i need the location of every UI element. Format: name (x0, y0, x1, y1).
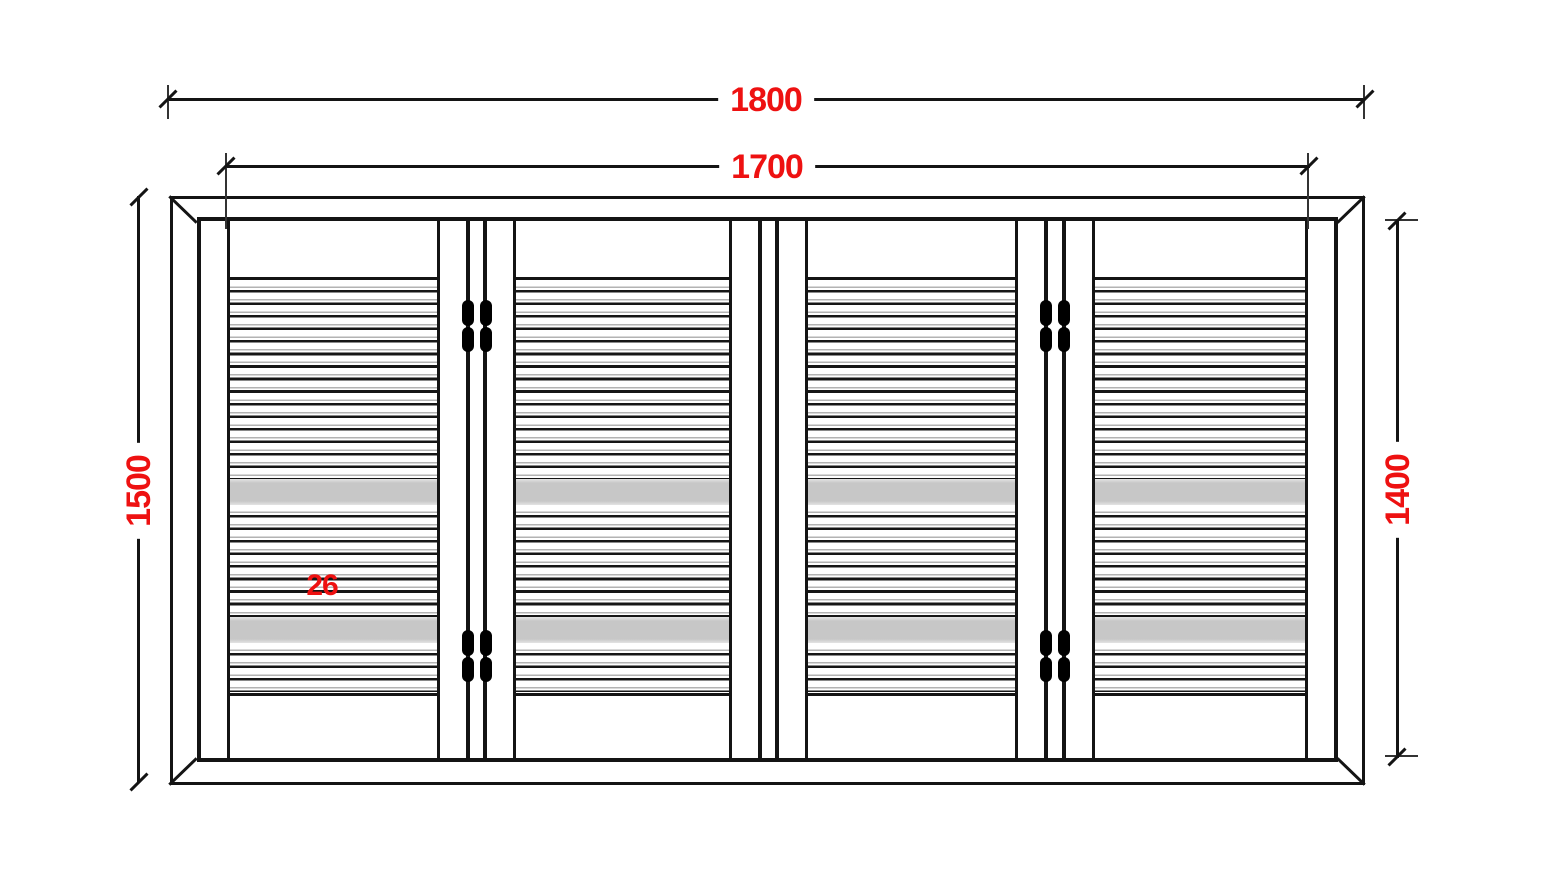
louver-slats-lower (516, 643, 729, 692)
hinge (462, 300, 492, 352)
hinge-leaf (1040, 300, 1052, 352)
door-panel-3 (775, 217, 1048, 762)
hinge (1040, 300, 1070, 352)
hinge-leaf (480, 630, 492, 682)
gray-band-lower (516, 617, 729, 643)
bottom-rail-line (1095, 693, 1305, 696)
louvered-door-elevation-drawing: 1800 1700 1500 1400 26 (0, 0, 1560, 876)
dim-extension-line (1385, 755, 1418, 757)
hinge-leaf (1058, 630, 1070, 682)
louver-slats-middle (516, 505, 729, 617)
louver-slats-lower (230, 643, 437, 692)
louver-box (513, 221, 732, 758)
louver-slats-upper (1095, 280, 1305, 479)
hinge-leaf (462, 300, 474, 352)
dim-extension-line (167, 85, 169, 119)
louver-box (805, 221, 1018, 758)
gray-band-lower (1095, 617, 1305, 643)
hinge (462, 630, 492, 682)
gray-band-upper (1095, 479, 1305, 505)
gray-band-upper (808, 479, 1015, 505)
door-panel-4 (1062, 217, 1338, 762)
dim-label-louver-pitch: 26 (306, 571, 337, 601)
hinge-leaf (462, 630, 474, 682)
dim-label-inner-width: 1700 (719, 150, 815, 184)
gray-band-lower (808, 617, 1015, 643)
louver-slats-upper (808, 280, 1015, 479)
hinge-leaf (1058, 300, 1070, 352)
door-panel-1 (197, 217, 470, 762)
gray-band-upper (516, 479, 729, 505)
louver-box (227, 221, 440, 758)
louver-slats-middle (808, 505, 1015, 617)
louver-slats-lower (808, 643, 1015, 692)
hinge (1040, 630, 1070, 682)
dim-label-overall-height: 1500 (122, 443, 156, 539)
dim-label-overall-width: 1800 (718, 83, 814, 117)
louver-box (1092, 221, 1308, 758)
door-panel-2 (483, 217, 762, 762)
louver-slats-upper (516, 280, 729, 479)
bottom-rail-line (808, 693, 1015, 696)
bottom-rail-line (516, 693, 729, 696)
hinge-leaf (1040, 630, 1052, 682)
dim-label-inner-height: 1400 (1381, 442, 1415, 538)
hinge-leaf (480, 300, 492, 352)
louver-slats-middle (1095, 505, 1305, 617)
bottom-rail-line (230, 693, 437, 696)
gray-band-upper (230, 479, 437, 505)
louver-slats-upper (230, 280, 437, 479)
gray-band-lower (230, 617, 437, 643)
louver-slats-lower (1095, 643, 1305, 692)
dim-extension-line (1385, 219, 1418, 221)
